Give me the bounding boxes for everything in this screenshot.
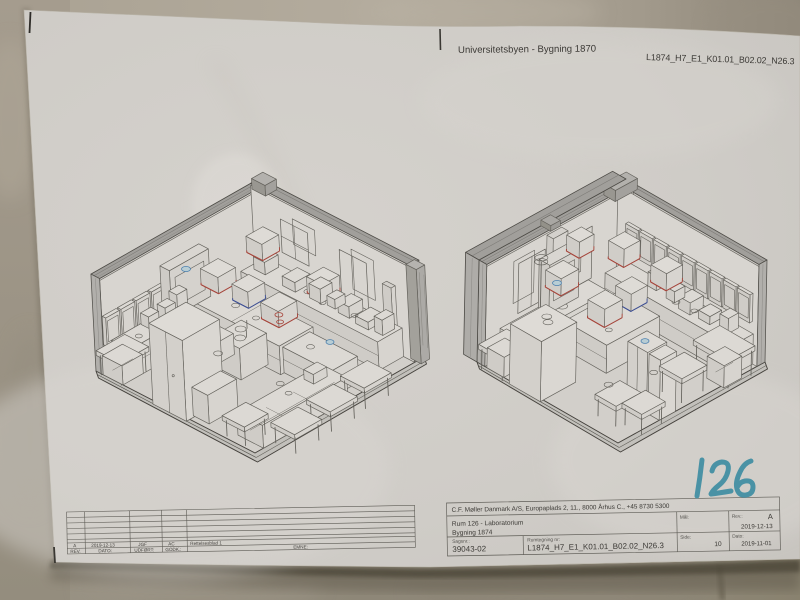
svg-text:Rev.:: Rev.: xyxy=(732,514,743,520)
svg-text:JGF: JGF xyxy=(138,542,147,547)
svg-text:UDFØRT:: UDFØRT: xyxy=(134,547,154,552)
svg-text:DATO:: DATO: xyxy=(98,548,112,553)
svg-text:2019-12-13: 2019-12-13 xyxy=(741,523,773,531)
svg-text:10: 10 xyxy=(714,541,722,548)
svg-text:Side:: Side: xyxy=(680,535,691,541)
svg-text:2019-11-01: 2019-11-01 xyxy=(741,541,772,548)
svg-text:Rettelsesblad 1: Rettelsesblad 1 xyxy=(190,540,222,546)
svg-text:2019-12-13: 2019-12-13 xyxy=(91,542,115,547)
svg-text:Universitetsbyen - Bygning 187: Universitetsbyen - Bygning 1870 xyxy=(458,44,596,56)
svg-text:AC: AC xyxy=(168,541,175,546)
svg-text:Bygning 1874: Bygning 1874 xyxy=(452,529,493,537)
svg-text:39043-02: 39043-02 xyxy=(452,544,487,554)
svg-text:A: A xyxy=(768,512,773,521)
svg-text:Dato:: Dato: xyxy=(732,534,744,540)
svg-text:EMNE:: EMNE: xyxy=(293,544,308,549)
svg-text:GODK.:: GODK.: xyxy=(165,547,181,552)
svg-text:REV.: REV. xyxy=(70,549,80,554)
svg-text:Rum 126 - Laboratorium: Rum 126 - Laboratorium xyxy=(452,520,524,528)
